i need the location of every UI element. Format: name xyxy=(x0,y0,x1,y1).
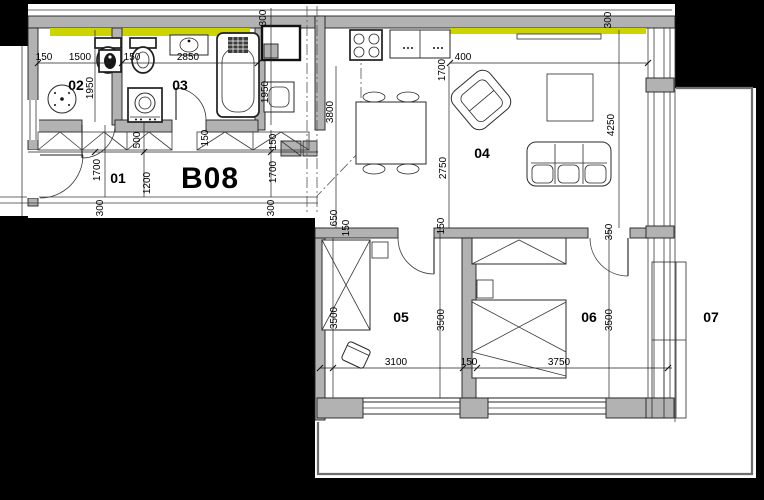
room-label-06: 06 xyxy=(581,309,597,325)
dim-label: 150 xyxy=(124,52,141,63)
kitchen-counter xyxy=(390,30,450,58)
dim-label: 150 xyxy=(36,52,53,63)
wardrobe-icon xyxy=(472,238,566,264)
exterior-strip xyxy=(0,46,28,216)
wall-bath-bottom-c xyxy=(206,120,258,132)
wall-main-top xyxy=(315,16,675,28)
floor-plan-drawing: 150 1500 1950 150 2850 1950 300 500 1200… xyxy=(0,0,764,500)
dim-label: 150 xyxy=(200,129,211,146)
wall-main-left-upper xyxy=(315,16,325,130)
room-label-07: 07 xyxy=(703,309,719,325)
dim-label: 150 xyxy=(461,357,478,368)
wall-bath-bottom-a xyxy=(38,120,82,132)
dim-label: 3500 xyxy=(329,306,340,329)
wall-04-06-stub xyxy=(630,228,648,238)
room-label-04: 04 xyxy=(474,145,490,161)
dim-label: 3500 xyxy=(436,308,447,331)
installation-shaft xyxy=(262,26,300,60)
dim-label: 300 xyxy=(306,379,317,396)
wall-left-stub xyxy=(28,198,38,206)
window-bottom-05 xyxy=(363,402,460,414)
room-label-01: 01 xyxy=(110,170,126,186)
dim-label: 300 xyxy=(603,11,614,28)
dim-label: 1700 xyxy=(437,58,448,81)
stove-icon xyxy=(350,30,382,60)
dim-label: 3500 xyxy=(604,308,615,331)
dim-label: 300 xyxy=(258,9,269,26)
dim-label: 150 xyxy=(436,217,447,234)
wall-04-06-b xyxy=(434,228,588,238)
dim-label: 3100 xyxy=(385,357,408,368)
dim-label: 1200 xyxy=(142,171,153,194)
floor-plan-canvas: 150 1500 1950 150 2850 1950 300 500 1200… xyxy=(0,0,764,500)
dim-label: 4250 xyxy=(606,113,617,136)
room-label-05: 05 xyxy=(393,309,409,325)
sofa-icon xyxy=(527,142,611,186)
room-label-03: 03 xyxy=(172,77,188,93)
dim-label: 150 xyxy=(268,133,279,150)
dim-label: 2850 xyxy=(177,52,200,63)
dim-label: 1950 xyxy=(85,76,96,99)
window-left xyxy=(27,100,39,140)
pier-bottom-a xyxy=(317,398,363,418)
wall-04-05-a xyxy=(315,228,398,238)
dim-label: 1500 xyxy=(69,52,92,63)
dining-table xyxy=(356,92,426,174)
dim-label: 150 xyxy=(341,219,352,236)
dim-label: 650 xyxy=(329,209,340,226)
dim-label: 350 xyxy=(604,223,615,240)
dim-label: 3800 xyxy=(325,100,336,123)
dim-label: 3750 xyxy=(548,357,571,368)
dim-label: 300 xyxy=(266,199,277,216)
unit-label: B08 xyxy=(181,162,239,195)
insulation-strip-02 xyxy=(50,28,112,36)
dim-label: 400 xyxy=(455,52,472,63)
insulation-strip-04 xyxy=(450,28,646,34)
dim-label: 1700 xyxy=(268,160,279,183)
dim-label: 500 xyxy=(132,131,143,148)
bathtub-icon xyxy=(217,33,259,117)
pier-bottom-b xyxy=(460,398,488,418)
window-bottom-06 xyxy=(488,402,606,414)
room-label-02: 02 xyxy=(68,77,84,93)
dim-label: 300 xyxy=(95,199,106,216)
washbasin-icon xyxy=(99,50,121,72)
dim-label: 1950 xyxy=(260,80,271,103)
dim-label: 2750 xyxy=(438,156,449,179)
washing-machine-icon xyxy=(128,88,162,122)
dim-label: 1700 xyxy=(92,158,103,181)
